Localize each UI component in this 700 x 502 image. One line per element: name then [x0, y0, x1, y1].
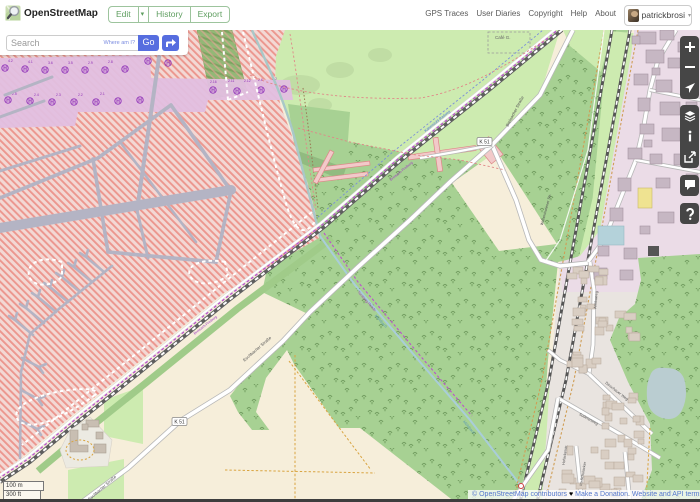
svg-text:H: H: [282, 87, 286, 93]
svg-text:K 51: K 51: [479, 140, 490, 146]
svg-text:H: H: [259, 88, 263, 94]
svg-text:2.2: 2.2: [78, 93, 83, 97]
svg-text:H: H: [116, 99, 120, 105]
svg-text:H: H: [83, 68, 87, 74]
svg-text:2.9: 2.9: [88, 61, 93, 65]
svg-text:H: H: [50, 100, 54, 106]
svg-text:H: H: [3, 66, 7, 72]
svg-text:H: H: [138, 98, 142, 104]
svg-text:2.4: 2.4: [34, 93, 39, 97]
svg-text:H: H: [123, 67, 127, 73]
svg-text:3.6: 3.6: [48, 61, 53, 65]
svg-text:2.8: 2.8: [108, 60, 113, 64]
svg-text:2.1: 2.1: [100, 92, 105, 96]
svg-text:4.2: 4.2: [8, 59, 13, 63]
svg-text:H: H: [63, 68, 67, 74]
svg-text:2.3: 2.3: [56, 93, 61, 97]
svg-text:3.5: 3.5: [68, 61, 73, 65]
svg-text:H: H: [23, 67, 27, 73]
svg-text:H: H: [166, 61, 170, 67]
svg-text:2.12: 2.12: [244, 79, 251, 83]
svg-text:2.11: 2.11: [228, 79, 234, 83]
svg-text:Café G.: Café G.: [495, 35, 511, 40]
svg-text:H: H: [103, 68, 107, 74]
svg-text:H: H: [146, 59, 150, 65]
svg-text:2.16: 2.16: [210, 80, 217, 84]
svg-text:H: H: [43, 68, 47, 74]
svg-text:H: H: [6, 98, 10, 104]
svg-text:H: H: [211, 88, 215, 94]
svg-text:H: H: [235, 89, 239, 95]
svg-text:H: H: [72, 100, 76, 106]
svg-text:4.1: 4.1: [28, 60, 33, 64]
svg-text:H: H: [28, 99, 32, 105]
svg-text:K 51: K 51: [174, 420, 185, 426]
svg-text:H: H: [94, 100, 98, 106]
